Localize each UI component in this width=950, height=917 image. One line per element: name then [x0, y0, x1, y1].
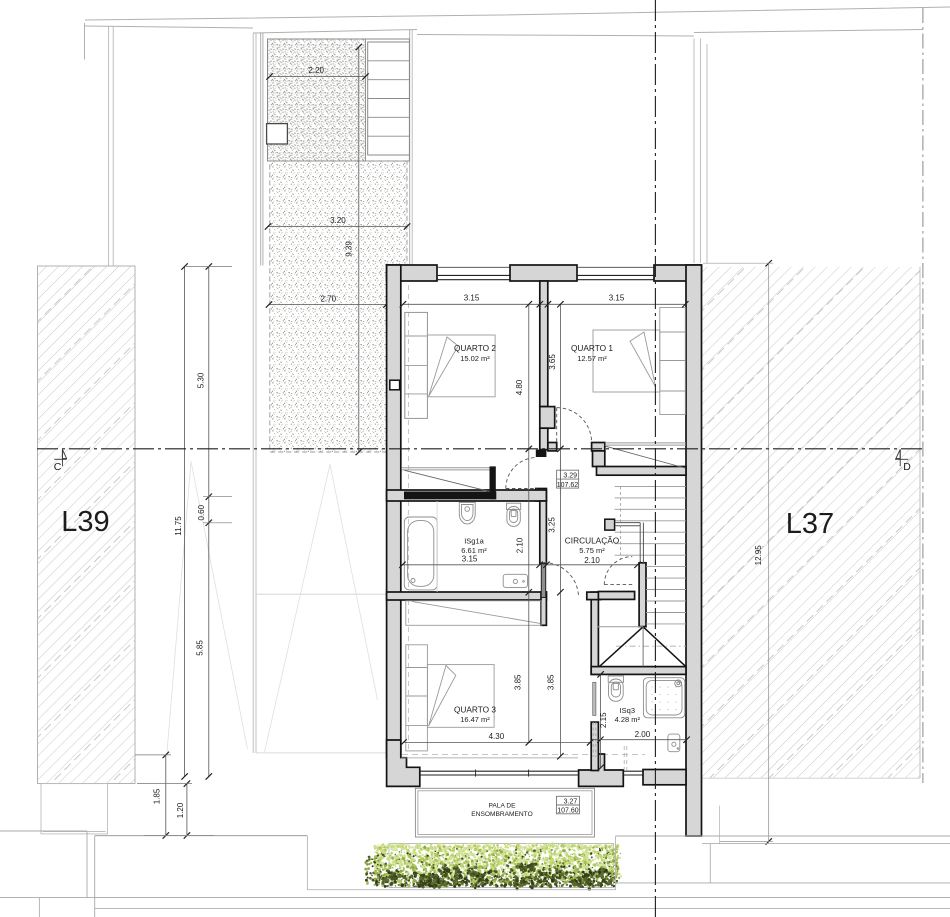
- svg-text:2.70: 2.70: [321, 295, 337, 304]
- svg-text:15.02 m²: 15.02 m²: [460, 354, 490, 363]
- svg-text:QUARTO 3: QUARTO 3: [454, 704, 496, 714]
- svg-text:9.39: 9.39: [344, 241, 353, 257]
- svg-text:L37: L37: [786, 508, 834, 540]
- svg-text:11.75: 11.75: [174, 516, 183, 536]
- svg-text:ISg1a: ISg1a: [464, 537, 484, 546]
- svg-text:3.27: 3.27: [564, 798, 578, 805]
- svg-text:12.95: 12.95: [754, 545, 763, 566]
- svg-text:5.75 m²: 5.75 m²: [579, 546, 605, 555]
- svg-text:C: C: [54, 461, 62, 473]
- svg-text:12.57 m²: 12.57 m²: [577, 354, 607, 363]
- svg-text:CIRCULAÇÃO: CIRCULAÇÃO: [565, 536, 620, 546]
- svg-text:1.20: 1.20: [176, 802, 185, 818]
- svg-text:2.00: 2.00: [635, 730, 651, 739]
- svg-text:4.28 m²: 4.28 m²: [615, 715, 641, 724]
- svg-text:4.30: 4.30: [489, 732, 505, 741]
- svg-text:2.15: 2.15: [599, 712, 608, 728]
- svg-text:3.15: 3.15: [462, 554, 478, 563]
- svg-text:QUARTO 1: QUARTO 1: [571, 343, 613, 353]
- svg-text:PALA DE: PALA DE: [489, 803, 517, 810]
- svg-text:3.20: 3.20: [330, 216, 346, 225]
- svg-text:16.47 m²: 16.47 m²: [460, 715, 490, 724]
- svg-text:2.10: 2.10: [515, 537, 524, 553]
- svg-text:ENSOMBRAMENTO: ENSOMBRAMENTO: [471, 811, 532, 818]
- svg-text:5.30: 5.30: [197, 372, 206, 388]
- svg-text:3.65: 3.65: [548, 354, 557, 370]
- svg-text:2.10: 2.10: [584, 556, 600, 565]
- svg-text:1.85: 1.85: [153, 788, 162, 804]
- svg-text:2.20: 2.20: [308, 66, 324, 75]
- svg-text:4.80: 4.80: [515, 379, 524, 395]
- svg-text:QUARTO 2: QUARTO 2: [454, 343, 496, 353]
- svg-text:5.85: 5.85: [196, 640, 205, 656]
- svg-text:3.29: 3.29: [563, 472, 577, 479]
- svg-text:L39: L39: [61, 506, 109, 538]
- svg-text:3.15: 3.15: [609, 294, 625, 303]
- svg-text:D: D: [903, 461, 911, 473]
- svg-text:ISq3: ISq3: [620, 706, 635, 715]
- svg-text:107.60: 107.60: [557, 807, 579, 814]
- svg-text:0.60: 0.60: [197, 504, 206, 520]
- svg-text:3.15: 3.15: [464, 294, 480, 303]
- svg-text:3.25: 3.25: [547, 517, 556, 533]
- svg-text:3.85: 3.85: [547, 674, 556, 690]
- svg-text:3.85: 3.85: [514, 674, 523, 690]
